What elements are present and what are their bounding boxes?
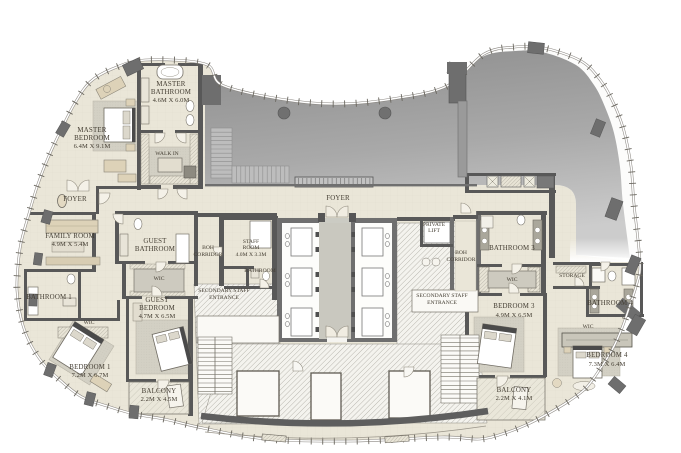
svg-text:WIC: WIC (154, 276, 165, 282)
svg-text:BATHROOM 1: BATHROOM 1 (26, 294, 72, 301)
svg-text:WIC: WIC (507, 277, 518, 283)
svg-text:2.2M X 4.5M: 2.2M X 4.5M (141, 396, 178, 403)
svg-text:ENTRANCE: ENTRANCE (209, 295, 239, 301)
svg-text:FAMILY ROOM: FAMILY ROOM (45, 233, 95, 240)
svg-text:7.3M X 6.4M: 7.3M X 6.4M (589, 361, 626, 368)
svg-text:BATHROOM 3: BATHROOM 3 (489, 245, 535, 252)
svg-text:2.2M X 4.1M: 2.2M X 4.1M (496, 395, 533, 402)
svg-text:ENTRANCE: ENTRANCE (427, 300, 457, 306)
svg-text:MASTER: MASTER (156, 81, 185, 88)
svg-text:WALK IN: WALK IN (155, 151, 178, 157)
svg-text:STORAGE: STORAGE (559, 273, 585, 279)
svg-text:CORRIDOR: CORRIDOR (447, 257, 476, 263)
svg-text:4.6M X 6.0M: 4.6M X 6.0M (153, 97, 190, 104)
svg-text:4.7M X 6.5M: 4.7M X 6.5M (139, 313, 176, 320)
svg-text:4.9M X 6.5M: 4.9M X 6.5M (496, 312, 533, 319)
svg-text:SECONDARY STAFF: SECONDARY STAFF (416, 293, 467, 299)
svg-text:ROOM: ROOM (243, 245, 260, 251)
svg-text:WIC: WIC (84, 320, 95, 326)
svg-text:BEDROOM: BEDROOM (139, 305, 175, 312)
svg-text:FOYER: FOYER (63, 196, 87, 203)
svg-text:4.9M X 5.4M: 4.9M X 5.4M (52, 241, 89, 248)
svg-text:BATHROOM: BATHROOM (244, 268, 275, 274)
svg-text:BALCONY: BALCONY (497, 387, 532, 394)
svg-text:BATHROOM: BATHROOM (151, 89, 191, 96)
svg-text:LIFT: LIFT (428, 228, 440, 234)
svg-text:BALCONY: BALCONY (142, 388, 177, 395)
svg-text:BOH: BOH (455, 250, 467, 256)
svg-text:BOH: BOH (202, 245, 214, 251)
svg-text:7.2M X 6.7M: 7.2M X 6.7M (72, 372, 109, 379)
svg-text:BEDROOM: BEDROOM (74, 135, 110, 142)
svg-text:BEDROOM 3: BEDROOM 3 (493, 303, 535, 310)
svg-text:FOYER: FOYER (326, 195, 350, 202)
svg-text:BEDROOM 1: BEDROOM 1 (69, 364, 111, 371)
svg-text:SECONDARY STAFF: SECONDARY STAFF (198, 288, 249, 294)
svg-text:BATHROOM 4: BATHROOM 4 (587, 300, 633, 307)
svg-text:BATHROOM: BATHROOM (135, 246, 175, 253)
svg-text:MASTER: MASTER (77, 127, 106, 134)
svg-text:BEDROOM 4: BEDROOM 4 (586, 352, 628, 359)
svg-text:GUEST: GUEST (143, 238, 167, 245)
svg-text:CORRIDOR: CORRIDOR (194, 252, 223, 258)
svg-text:4.0M X 3.3M: 4.0M X 3.3M (236, 252, 267, 258)
svg-text:GUEST: GUEST (145, 297, 169, 304)
svg-text:6.4M X 9.1M: 6.4M X 9.1M (74, 143, 111, 150)
svg-text:WIC: WIC (583, 324, 594, 330)
